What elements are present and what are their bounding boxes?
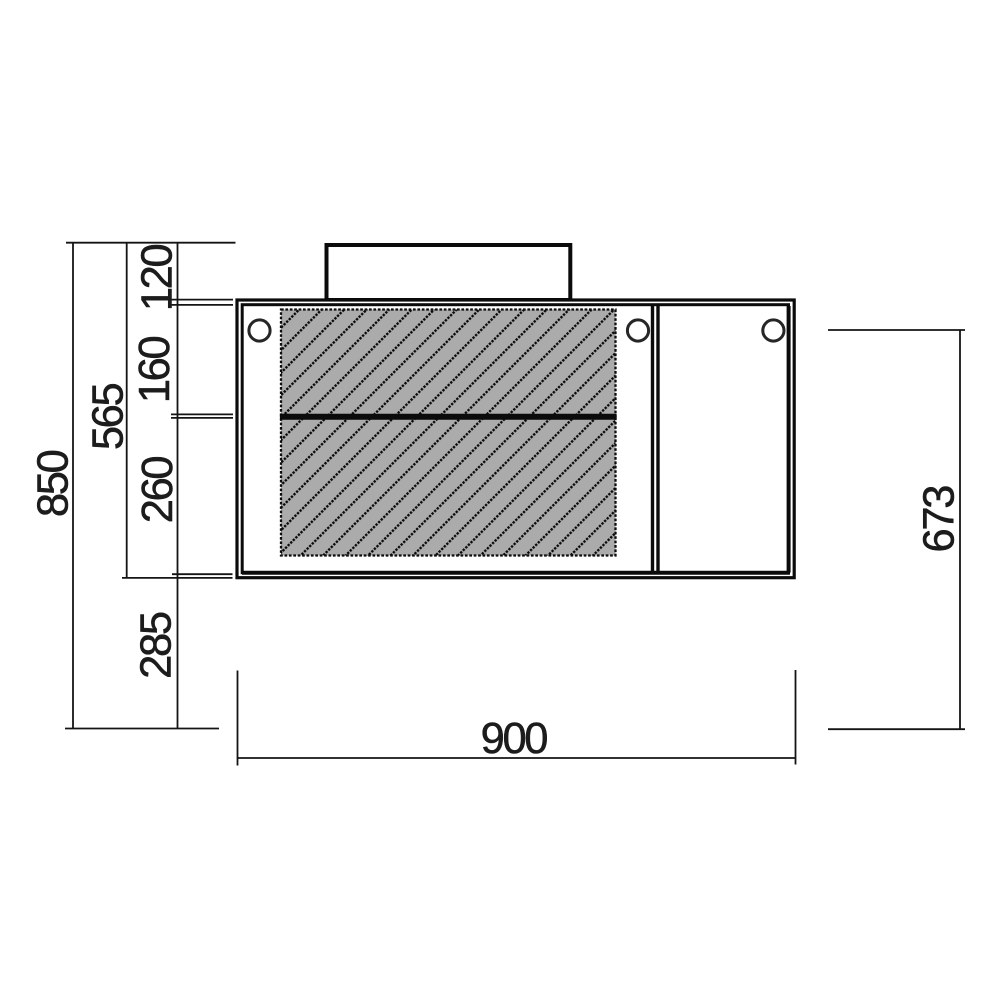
- svg-text:260: 260: [134, 457, 182, 524]
- svg-text:120: 120: [134, 244, 182, 311]
- svg-text:285: 285: [132, 612, 180, 679]
- svg-text:850: 850: [30, 450, 78, 517]
- svg-text:900: 900: [481, 715, 548, 763]
- svg-text:673: 673: [916, 486, 964, 553]
- svg-text:565: 565: [85, 383, 133, 450]
- svg-text:160: 160: [131, 336, 179, 403]
